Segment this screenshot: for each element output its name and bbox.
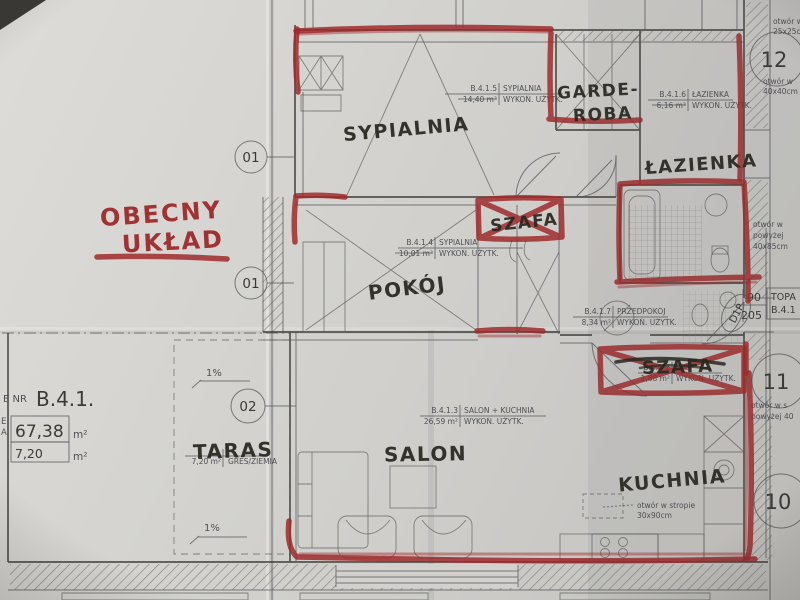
floorplan-svg: B.4.1.5 SYPIALNIA 14,40 m² WYKOŃ. UŻYTK.… [0, 0, 800, 600]
floorplan-photo: B.4.1.5 SYPIALNIA 14,40 m² WYKOŃ. UŻYTK.… [0, 0, 800, 600]
vignette [0, 0, 800, 600]
